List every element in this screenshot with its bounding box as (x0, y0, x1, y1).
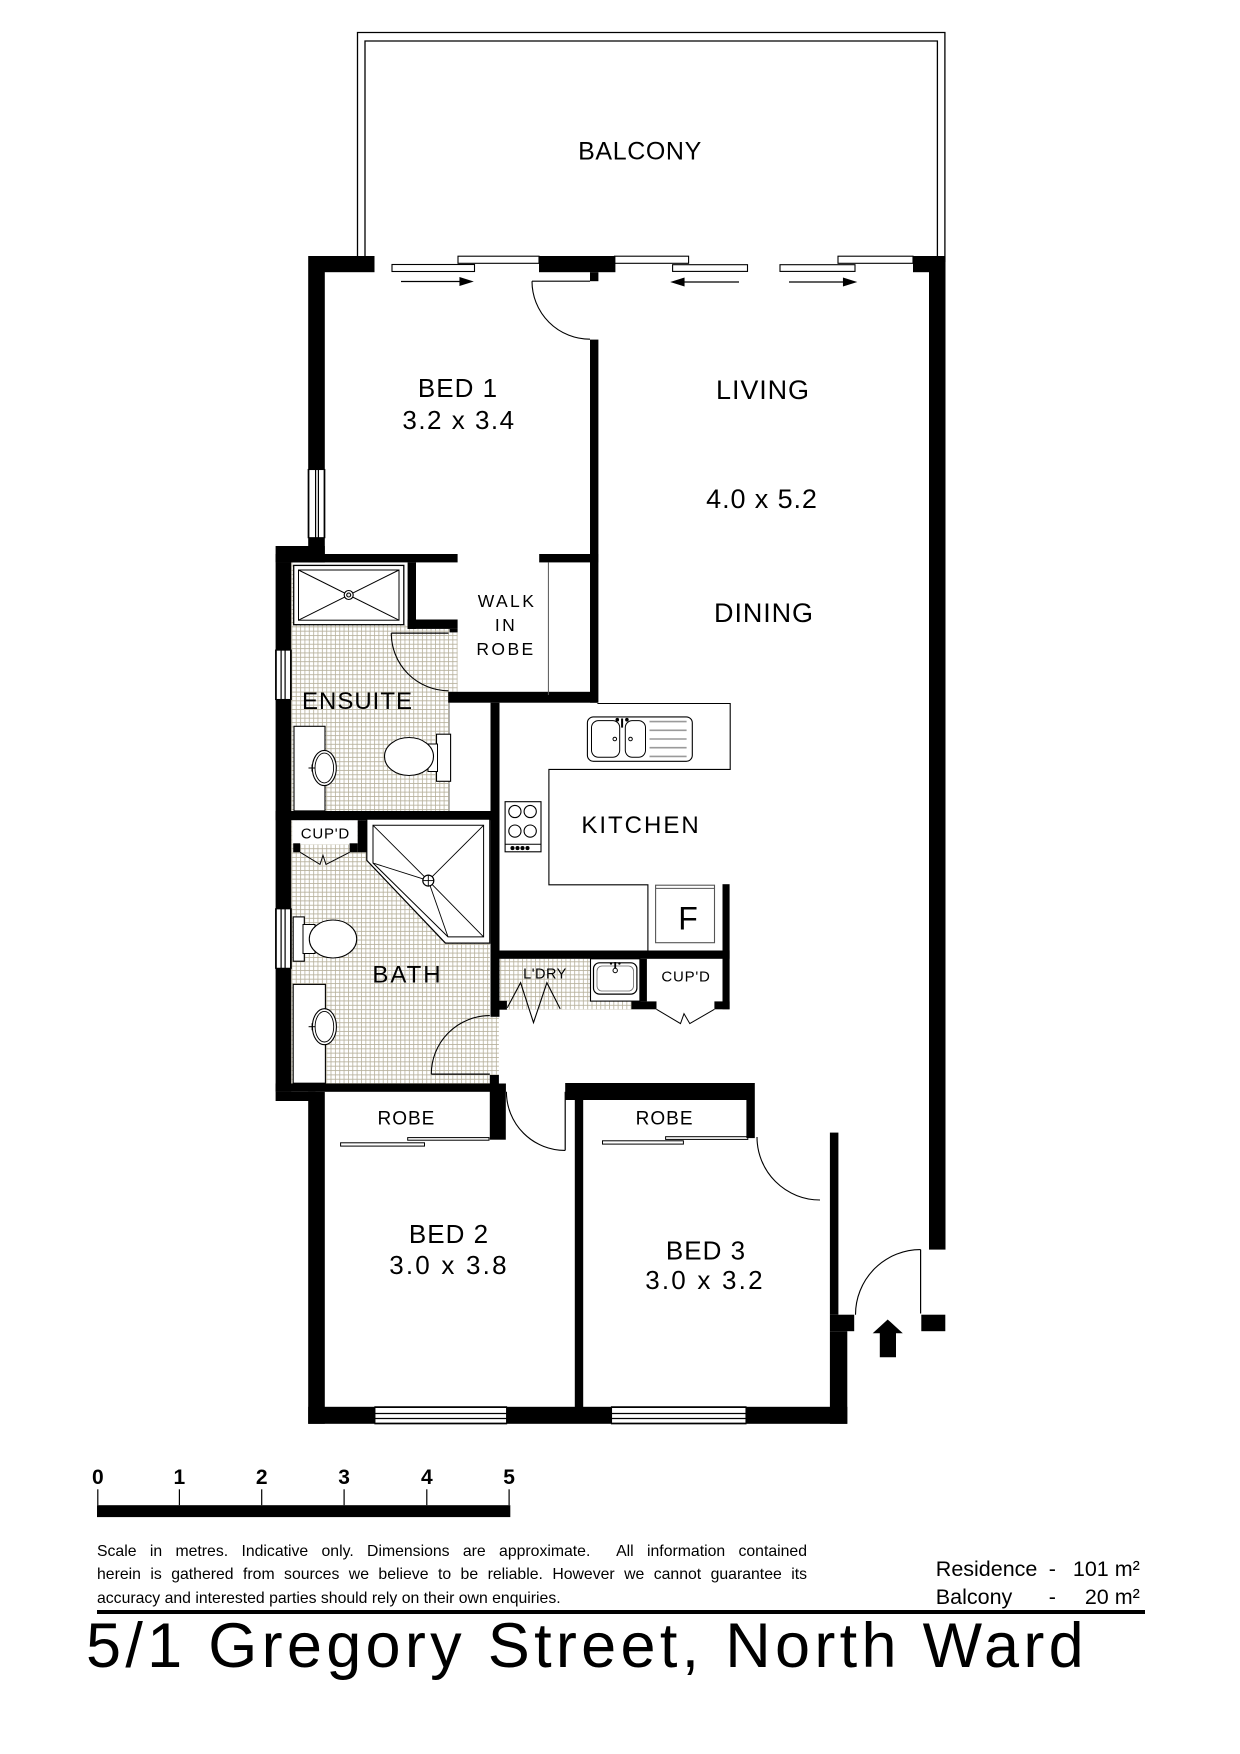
svg-text:0: 0 (92, 1466, 104, 1489)
svg-text:3.0 x 3.8: 3.0 x 3.8 (389, 1250, 509, 1280)
svg-text:IN: IN (495, 615, 517, 635)
svg-text:3: 3 (338, 1466, 350, 1489)
svg-text:3.2 x 3.4: 3.2 x 3.4 (402, 405, 515, 435)
svg-text:BED 3: BED 3 (666, 1236, 746, 1266)
svg-text:DINING: DINING (714, 598, 814, 628)
svg-text:CUP'D: CUP'D (661, 969, 710, 986)
svg-text:L'DRY: L'DRY (523, 967, 567, 983)
svg-text:ROBE: ROBE (377, 1109, 435, 1130)
svg-text:KITCHEN: KITCHEN (581, 812, 700, 839)
svg-text:4: 4 (421, 1466, 433, 1489)
svg-text:CUP'D: CUP'D (301, 826, 350, 843)
svg-text:BATH: BATH (372, 962, 442, 989)
svg-text:1: 1 (174, 1466, 186, 1489)
svg-text:ROBE: ROBE (636, 1109, 694, 1130)
svg-text:2: 2 (256, 1466, 268, 1489)
svg-text:LIVING: LIVING (716, 375, 810, 405)
svg-text:WALK: WALK (478, 591, 537, 611)
svg-text:F: F (678, 901, 698, 937)
svg-text:ROBE: ROBE (476, 639, 535, 659)
svg-text:5: 5 (503, 1466, 515, 1489)
svg-text:ENSUITE: ENSUITE (302, 688, 413, 715)
svg-text:BED 1: BED 1 (418, 373, 498, 403)
svg-text:BALCONY: BALCONY (578, 138, 702, 166)
svg-text:3.0 x 3.2: 3.0 x 3.2 (645, 1265, 765, 1295)
svg-text:4.0 x 5.2: 4.0 x 5.2 (706, 484, 818, 514)
svg-text:BED 2: BED 2 (409, 1219, 489, 1249)
